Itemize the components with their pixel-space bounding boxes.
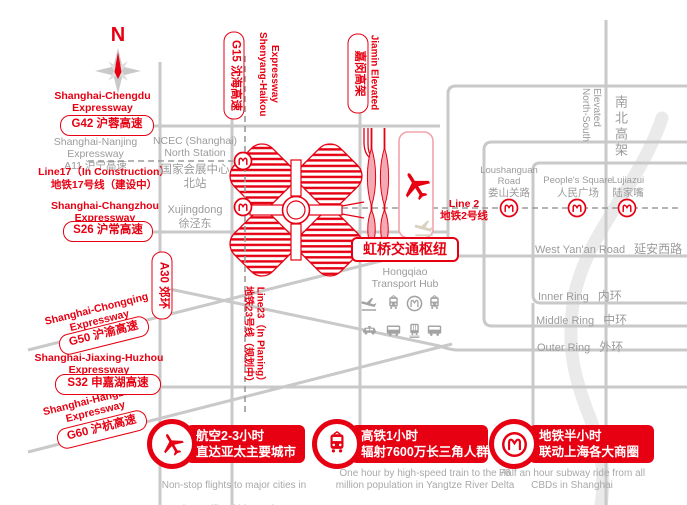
terminal-building xyxy=(397,132,435,238)
west-yanan-road-label: West Yan'an Road 延安西路 xyxy=(535,240,682,257)
airplane-icon xyxy=(361,298,376,311)
s32-badge: S32 申嘉湖高速 xyxy=(55,374,161,395)
hongqiao-hub-badge: 虹桥交通枢纽 xyxy=(351,237,459,262)
inner-ring-label: Inner Ring 内环 xyxy=(538,287,622,304)
hub-transport-icons xyxy=(361,296,441,338)
g42-badge: G42 沪蓉高速 xyxy=(60,115,154,136)
line23-label-en: Line23（In Planing） xyxy=(255,273,270,401)
hongqiao-transport-map: N Shanghai-Chengdu Expressway G42 沪蓉高速 S… xyxy=(0,0,687,505)
banner-metro-text: 地铁半小时 联动上海各大商圈 xyxy=(529,425,654,463)
compass-north-label: N xyxy=(104,24,132,47)
jiamin-badge: 嘉闵高架 xyxy=(348,34,369,114)
banner-rail-circle xyxy=(312,419,362,469)
hongqiao-hub-name: Hongqiao Transport Hub xyxy=(355,266,455,290)
banner-metro-en: Half an hour subway ride from all CBDs i… xyxy=(478,468,666,492)
airplane-icon xyxy=(159,431,186,458)
g15-badge: G15 沈海高速 xyxy=(224,32,245,120)
taxi-icon xyxy=(363,326,376,334)
north-south-elevated-zh: 南北高架 xyxy=(611,92,630,162)
ncec-station-name-zh: 国家会展中心 北站 xyxy=(150,163,240,191)
maglev-icon xyxy=(410,324,420,338)
banner-air-text: 航空2-3小时 直达亚太主要城市 xyxy=(186,425,305,463)
s32-expressway-name: Shanghai-Jiaxing-Huzhou Expressway xyxy=(32,352,166,376)
banner-air-circle xyxy=(147,419,197,469)
g15-expressway-name: Shenyang-Haikou Expressway xyxy=(256,22,280,126)
metro-icon xyxy=(407,296,421,310)
banner-rail-text: 高铁1小时 辐射7600万长三角人群 xyxy=(351,425,488,463)
xujingdong-station-name: Xujingdong 徐泾东 xyxy=(155,203,235,231)
coach-icon xyxy=(428,326,441,336)
jiamin-elevated-name: Jiamin Elevated xyxy=(369,27,380,119)
high-speed-train-icon xyxy=(324,431,350,457)
north-south-elevated-en: North-South Elevated xyxy=(580,88,602,168)
s26-badge: S26 沪常高速 xyxy=(63,221,153,242)
a30-badge: A30 郊环 xyxy=(152,252,173,320)
compass-icon xyxy=(95,48,141,94)
high-speed-train-icon xyxy=(389,296,398,309)
metro-icon xyxy=(501,431,528,458)
ncec-station-name-en: NCEC (Shanghai) North Station xyxy=(143,136,247,159)
station-lujiazui: Lujiazui 陆家嘴 xyxy=(601,176,655,200)
g42-expressway-name: Shanghai-Chengdu Expressway xyxy=(45,90,160,114)
banner-metro-circle xyxy=(489,419,539,469)
outer-ring-label: Outer Ring 外环 xyxy=(537,338,623,355)
middle-ring-label: Middle Ring 中环 xyxy=(536,311,627,328)
banner-air-en: Non-stop flights to major cities in Asia… xyxy=(140,468,328,505)
station-loushanguan: Loushanguan Road 娄山关路 xyxy=(480,166,538,200)
intercity-rail-icon xyxy=(430,296,439,309)
